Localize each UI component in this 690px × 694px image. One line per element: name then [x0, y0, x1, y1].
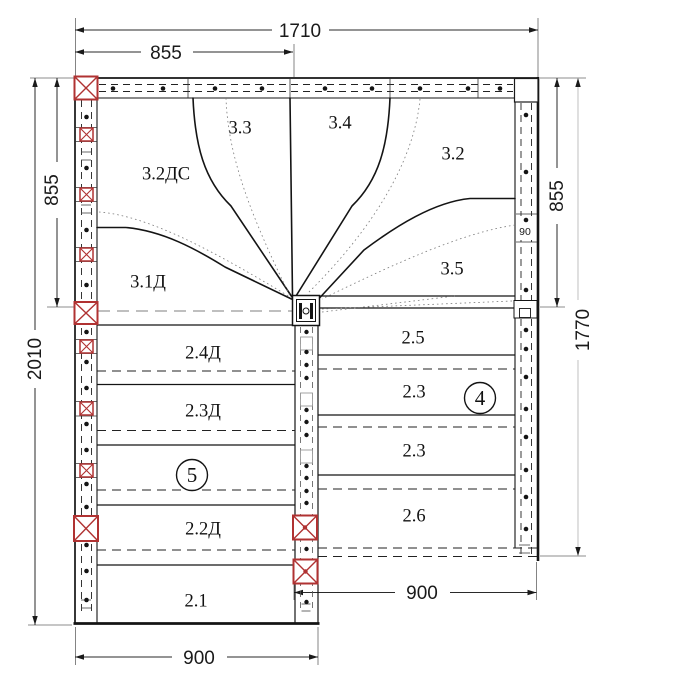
right-wall-block	[514, 301, 537, 319]
tread-label-26: 2.6	[402, 507, 425, 527]
stud-marker-icon	[80, 464, 93, 477]
tread-label-25: 2.5	[401, 329, 424, 349]
stud-marker-icon	[80, 340, 93, 353]
column-marker-icon	[75, 302, 98, 324]
dim-label-right-upper: 855	[547, 180, 568, 212]
winder-label-35: 3.5	[440, 260, 463, 280]
winder-label-32dc: 3.2ДС	[142, 165, 190, 185]
column-markers	[74, 77, 318, 584]
flight-marker-5-label: 5	[187, 463, 198, 487]
dim-label-bottom-left: 900	[183, 648, 215, 669]
winder-label-33: 3.3	[228, 119, 251, 139]
dim-label-right-total: 1770	[573, 309, 594, 351]
tread-label-23a: 2.3	[402, 383, 425, 403]
stud-marker-icon	[80, 128, 93, 141]
dim-label-half-width: 855	[150, 43, 182, 64]
column-marker-icon	[294, 560, 318, 584]
right-flight-treads	[318, 296, 537, 557]
tread-label-23b: 2.3	[402, 442, 425, 462]
dim-label-bottom-right: 900	[406, 583, 438, 604]
flight-marker-4-label: 4	[475, 386, 486, 410]
dim-label-total-width: 1710	[279, 21, 321, 42]
wall-blocking	[301, 337, 313, 463]
stair-plan-canvas: 1710 855 855 2010 855 1770 90 900 900 3.…	[0, 0, 690, 694]
stud-marker-icon	[80, 248, 93, 261]
fastener-dots-top-wall	[111, 86, 503, 91]
tread-label-23d: 2.3Д	[185, 402, 221, 422]
dim-half-width	[75, 49, 293, 54]
dim-label-stud: 90	[519, 226, 531, 238]
column-marker-icon	[74, 516, 98, 541]
flight-marker-4: 4	[465, 383, 496, 414]
tread-label-24d: 2.4Д	[185, 344, 221, 364]
tread-label-22d: 2.2Д	[185, 520, 221, 540]
right-wall	[515, 77, 538, 561]
flight-marker-5: 5	[177, 460, 208, 491]
column-marker-icon	[75, 77, 98, 100]
dim-label-left-total: 2010	[25, 338, 46, 380]
fastener-dots-right-wall	[524, 113, 529, 532]
stud-marker-icon	[80, 188, 93, 201]
winder-label-31d: 3.1Д	[130, 273, 166, 293]
winder-label-32: 3.2	[441, 145, 464, 165]
stair-plan-drawing: 1710 855 855 2010 855 1770 90 900 900 3.…	[0, 0, 690, 694]
center-post	[293, 296, 320, 326]
stud-marker-icon	[80, 402, 93, 415]
column-marker-icon	[293, 516, 317, 540]
tread-label-21: 2.1	[184, 592, 207, 612]
dim-label-left-upper: 855	[42, 174, 63, 206]
winder-label-34: 3.4	[328, 114, 351, 134]
corner-post-block	[515, 79, 539, 103]
